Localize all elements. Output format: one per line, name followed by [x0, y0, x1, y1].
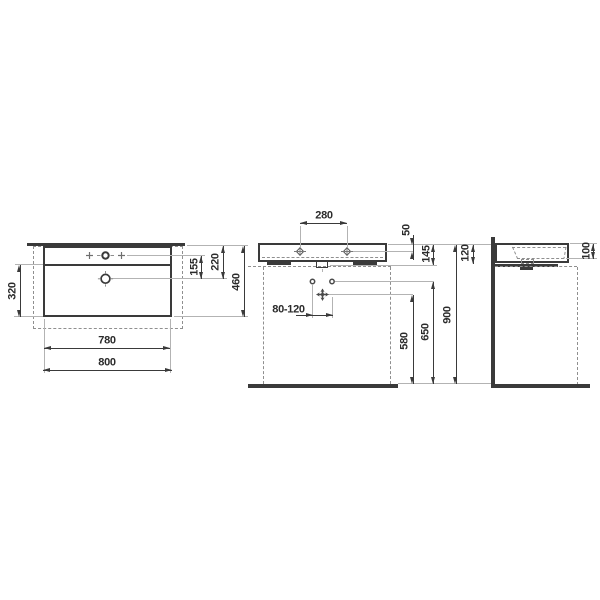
dim-line	[433, 282, 434, 384]
arrowhead	[163, 346, 170, 350]
arrowhead	[453, 377, 457, 384]
arrowhead	[453, 245, 457, 252]
dim-label-waste-range: 80-120	[272, 304, 304, 315]
arrowhead	[410, 252, 414, 259]
hidden-line-side	[495, 266, 577, 267]
hidden-outline-side-right	[577, 267, 578, 385]
drain-stub-tick	[322, 269, 323, 273]
arrowhead	[17, 265, 21, 272]
dim-label-fixing-height: 650	[420, 323, 431, 340]
tap-deck-line	[45, 264, 170, 266]
ext-line-tapholes	[351, 251, 414, 252]
ext-line	[174, 316, 248, 317]
basin-outline-front	[258, 243, 387, 262]
dim-line	[244, 246, 245, 317]
arrowhead	[43, 368, 50, 372]
arrowhead	[241, 246, 245, 253]
wall-fixing-dot-right	[330, 279, 334, 283]
arrowhead	[326, 313, 333, 317]
arrowhead	[17, 310, 21, 317]
drain-tab-side	[520, 267, 533, 270]
dim-label-waste-height: 580	[399, 332, 410, 349]
basin-outline-plan	[43, 246, 172, 317]
dim-label-inner-depth: 100	[581, 242, 592, 259]
wall-fixing-dot-left	[310, 279, 314, 283]
arrowhead	[410, 377, 414, 384]
dim-line	[43, 370, 172, 371]
dim-label-inner-width: 780	[98, 335, 115, 346]
floor-line-front	[248, 384, 398, 388]
ext-line-rim	[388, 244, 491, 245]
arrowhead	[431, 377, 435, 384]
ext-line-underside	[330, 265, 437, 266]
dim-label-tap-spacing: 280	[315, 210, 332, 221]
arrowhead	[165, 368, 172, 372]
dim-label-bowl-depth: 320	[8, 282, 19, 299]
drain-centerline	[111, 278, 227, 279]
arrowhead	[241, 310, 245, 317]
dim-label-body-height: 120	[461, 244, 472, 261]
arrowhead	[221, 272, 225, 279]
dim-line	[456, 245, 457, 384]
ext-line	[187, 245, 248, 246]
arrowhead	[300, 221, 307, 225]
dim-label-rear-to-drain: 220	[211, 253, 222, 270]
hidden-bowl-line	[262, 257, 383, 258]
hidden-outline-front-left	[263, 267, 264, 384]
dim-label-overall-depth: 460	[231, 273, 242, 290]
leader-fixing	[335, 281, 434, 282]
dim-label-rim-to-tap: 50	[401, 224, 412, 236]
ext-line	[347, 226, 348, 247]
floor-line-side	[491, 384, 590, 388]
arrowhead	[410, 295, 414, 302]
drain-stub	[316, 262, 328, 269]
bowl-drain-hidden	[521, 259, 534, 264]
dim-label-tap-to-drain: 155	[189, 258, 200, 275]
bowl-inner-top	[512, 247, 566, 248]
dim-line	[44, 348, 170, 349]
arrowhead	[306, 313, 313, 317]
leader-waste	[327, 294, 413, 295]
arrowhead	[431, 282, 435, 289]
tap-centerline	[127, 255, 205, 256]
dim-label-rim-to-underside: 145	[421, 245, 432, 262]
bracket-left	[267, 262, 291, 266]
dim-line	[413, 295, 414, 384]
hidden-outline-front-right	[390, 267, 391, 384]
arrowhead	[410, 238, 414, 245]
arrowhead	[44, 346, 51, 350]
dim-label-rim-height: 900	[442, 306, 453, 323]
technical-drawing-canvas: 320 155 220 460 780 800	[0, 0, 600, 600]
ext-line	[300, 226, 301, 247]
hidden-line	[248, 266, 391, 267]
arrowhead	[221, 246, 225, 253]
dim-label-overall-width: 800	[98, 357, 115, 368]
arrowhead	[340, 221, 347, 225]
